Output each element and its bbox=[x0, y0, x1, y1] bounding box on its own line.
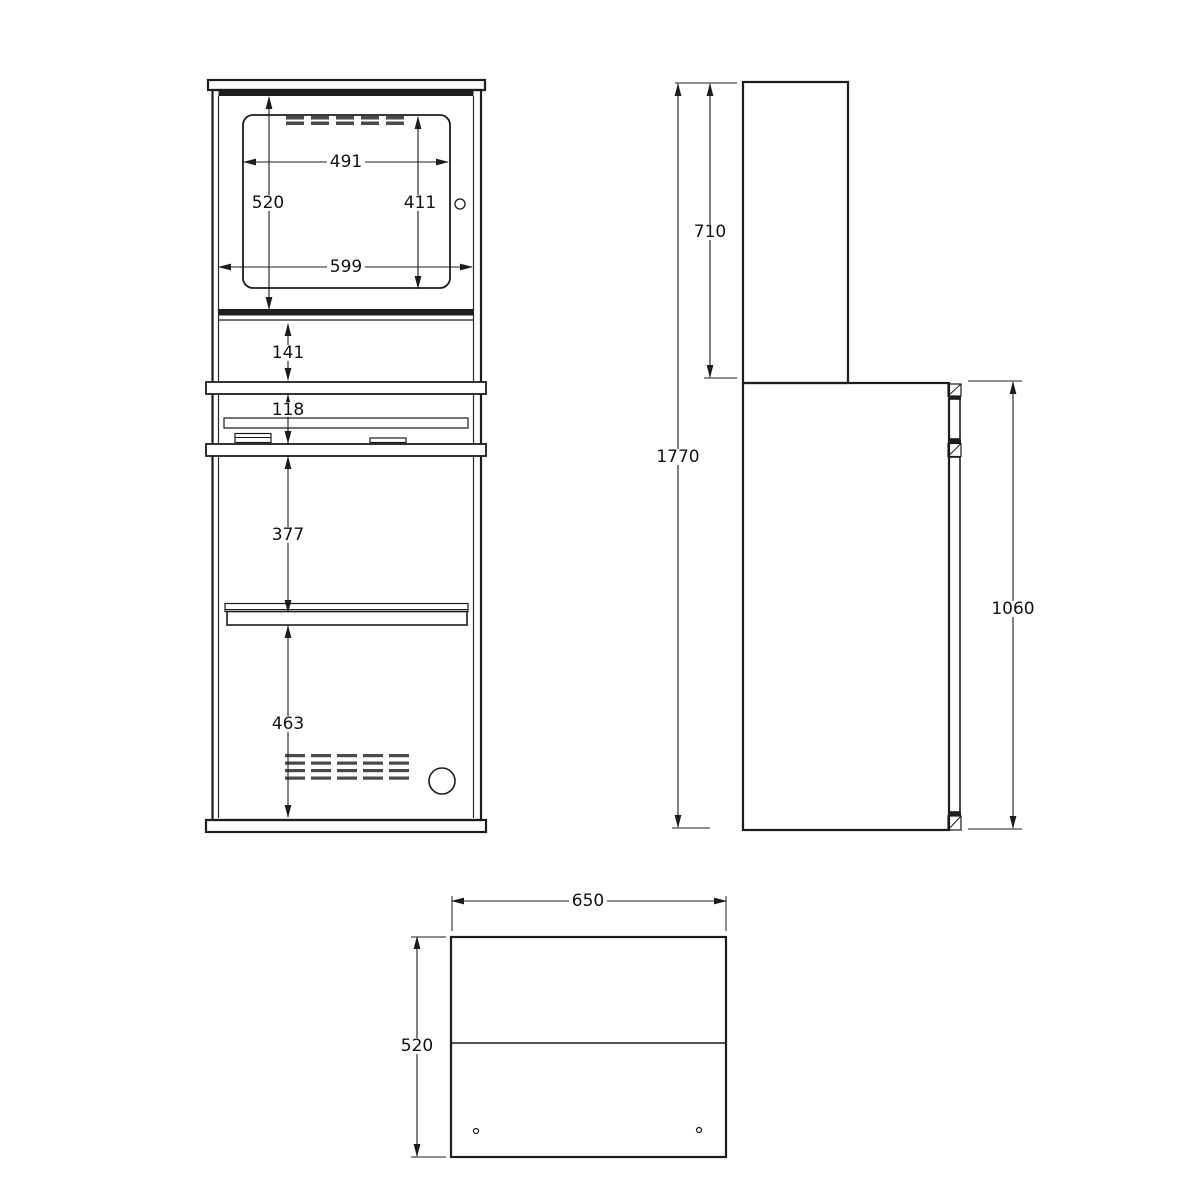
vent-slot bbox=[386, 122, 404, 126]
door-shelf-top bbox=[225, 604, 468, 612]
dim-keyboard-section-height: 118 bbox=[269, 395, 307, 443]
vent-slot bbox=[389, 777, 409, 780]
drawing-canvas: 491 520 411 599 141 118 bbox=[0, 0, 1200, 1200]
vent-slot bbox=[337, 769, 357, 772]
vent-slot bbox=[337, 754, 357, 757]
front-view: 491 520 411 599 141 118 bbox=[206, 80, 486, 832]
vent-slot bbox=[361, 116, 379, 120]
vent-slot bbox=[337, 777, 357, 780]
keyboard-tray-right-block bbox=[370, 438, 406, 443]
dim-lower-door-height: 463 bbox=[269, 626, 307, 817]
side-view: 710 1770 1060 bbox=[654, 82, 1037, 830]
dim-bezel-width: 491 bbox=[244, 152, 448, 172]
window-bottom-bar bbox=[219, 309, 474, 316]
window-top-bar bbox=[219, 91, 474, 96]
dim-total-height: 1770 bbox=[654, 84, 702, 827]
dim-door-to-shelf: 377 bbox=[269, 457, 307, 612]
vent-slot bbox=[311, 762, 331, 765]
door-panel-lower bbox=[949, 457, 960, 812]
vent-slot bbox=[336, 116, 354, 120]
dim-label: 118 bbox=[272, 400, 304, 420]
dim-base-width: 650 bbox=[452, 891, 726, 911]
dim-label: 599 bbox=[330, 257, 362, 277]
dim-upper-section-height: 710 bbox=[688, 84, 732, 377]
hinge-bar bbox=[948, 440, 961, 444]
vent-slot bbox=[389, 769, 409, 772]
base-plate bbox=[206, 820, 486, 832]
dim-label: 491 bbox=[330, 152, 362, 172]
door-panel-upper bbox=[949, 399, 960, 439]
vent-slot bbox=[286, 116, 304, 120]
dim-upper-panel-height: 141 bbox=[269, 324, 307, 380]
top-cap bbox=[208, 80, 485, 90]
dim-base-depth: 520 bbox=[398, 937, 436, 1156]
dim-label: 1770 bbox=[656, 447, 699, 467]
keyboard-tray-slot bbox=[224, 418, 468, 428]
dim-window-height: 520 bbox=[249, 97, 287, 309]
dim-lower-section-height: 1060 bbox=[989, 382, 1037, 828]
dim-label: 1060 bbox=[991, 599, 1034, 619]
screen-vent-grid bbox=[286, 116, 404, 125]
bottom-view: 650 520 bbox=[398, 891, 726, 1157]
dim-label: 710 bbox=[694, 222, 726, 242]
vent-slot bbox=[336, 122, 354, 126]
vent-slot bbox=[361, 122, 379, 126]
rail-band-bottom bbox=[206, 444, 486, 456]
vent-slot bbox=[286, 122, 304, 126]
vent-slot bbox=[311, 754, 331, 757]
dim-label: 141 bbox=[272, 343, 304, 363]
lower-section-outline bbox=[743, 383, 949, 830]
rail-band-top bbox=[206, 382, 486, 394]
mounting-hole-left bbox=[474, 1129, 479, 1134]
dim-label: 650 bbox=[572, 891, 604, 911]
vent-slot bbox=[311, 777, 331, 780]
upper-section-outline bbox=[743, 82, 848, 383]
hinge-bar bbox=[948, 396, 961, 400]
vent-slot bbox=[311, 116, 329, 120]
vent-slot bbox=[389, 762, 409, 765]
dim-label: 377 bbox=[272, 525, 304, 545]
vent-slot bbox=[311, 122, 329, 126]
base-outline bbox=[451, 937, 726, 1157]
vent-slot bbox=[363, 754, 383, 757]
dim-label: 520 bbox=[401, 1036, 433, 1056]
vent-slot bbox=[386, 116, 404, 120]
dim-label: 520 bbox=[252, 193, 284, 213]
dim-window-width: 599 bbox=[219, 257, 472, 277]
vent-slot bbox=[389, 754, 409, 757]
door-shelf-bottom bbox=[227, 612, 467, 626]
door-lock-circle bbox=[429, 768, 455, 794]
vent-slot bbox=[311, 769, 331, 772]
vent-slot bbox=[363, 777, 383, 780]
mounting-hole-right bbox=[697, 1128, 702, 1133]
vent-slot bbox=[337, 762, 357, 765]
dim-label: 411 bbox=[404, 193, 436, 213]
technical-drawing: 491 520 411 599 141 118 bbox=[0, 0, 1200, 1200]
dim-bezel-height: 411 bbox=[401, 117, 439, 288]
door-vent-grid bbox=[285, 754, 409, 780]
vent-slot bbox=[363, 769, 383, 772]
vent-slot bbox=[363, 762, 383, 765]
bezel-button-circle bbox=[455, 199, 465, 209]
dim-label: 463 bbox=[272, 714, 304, 734]
